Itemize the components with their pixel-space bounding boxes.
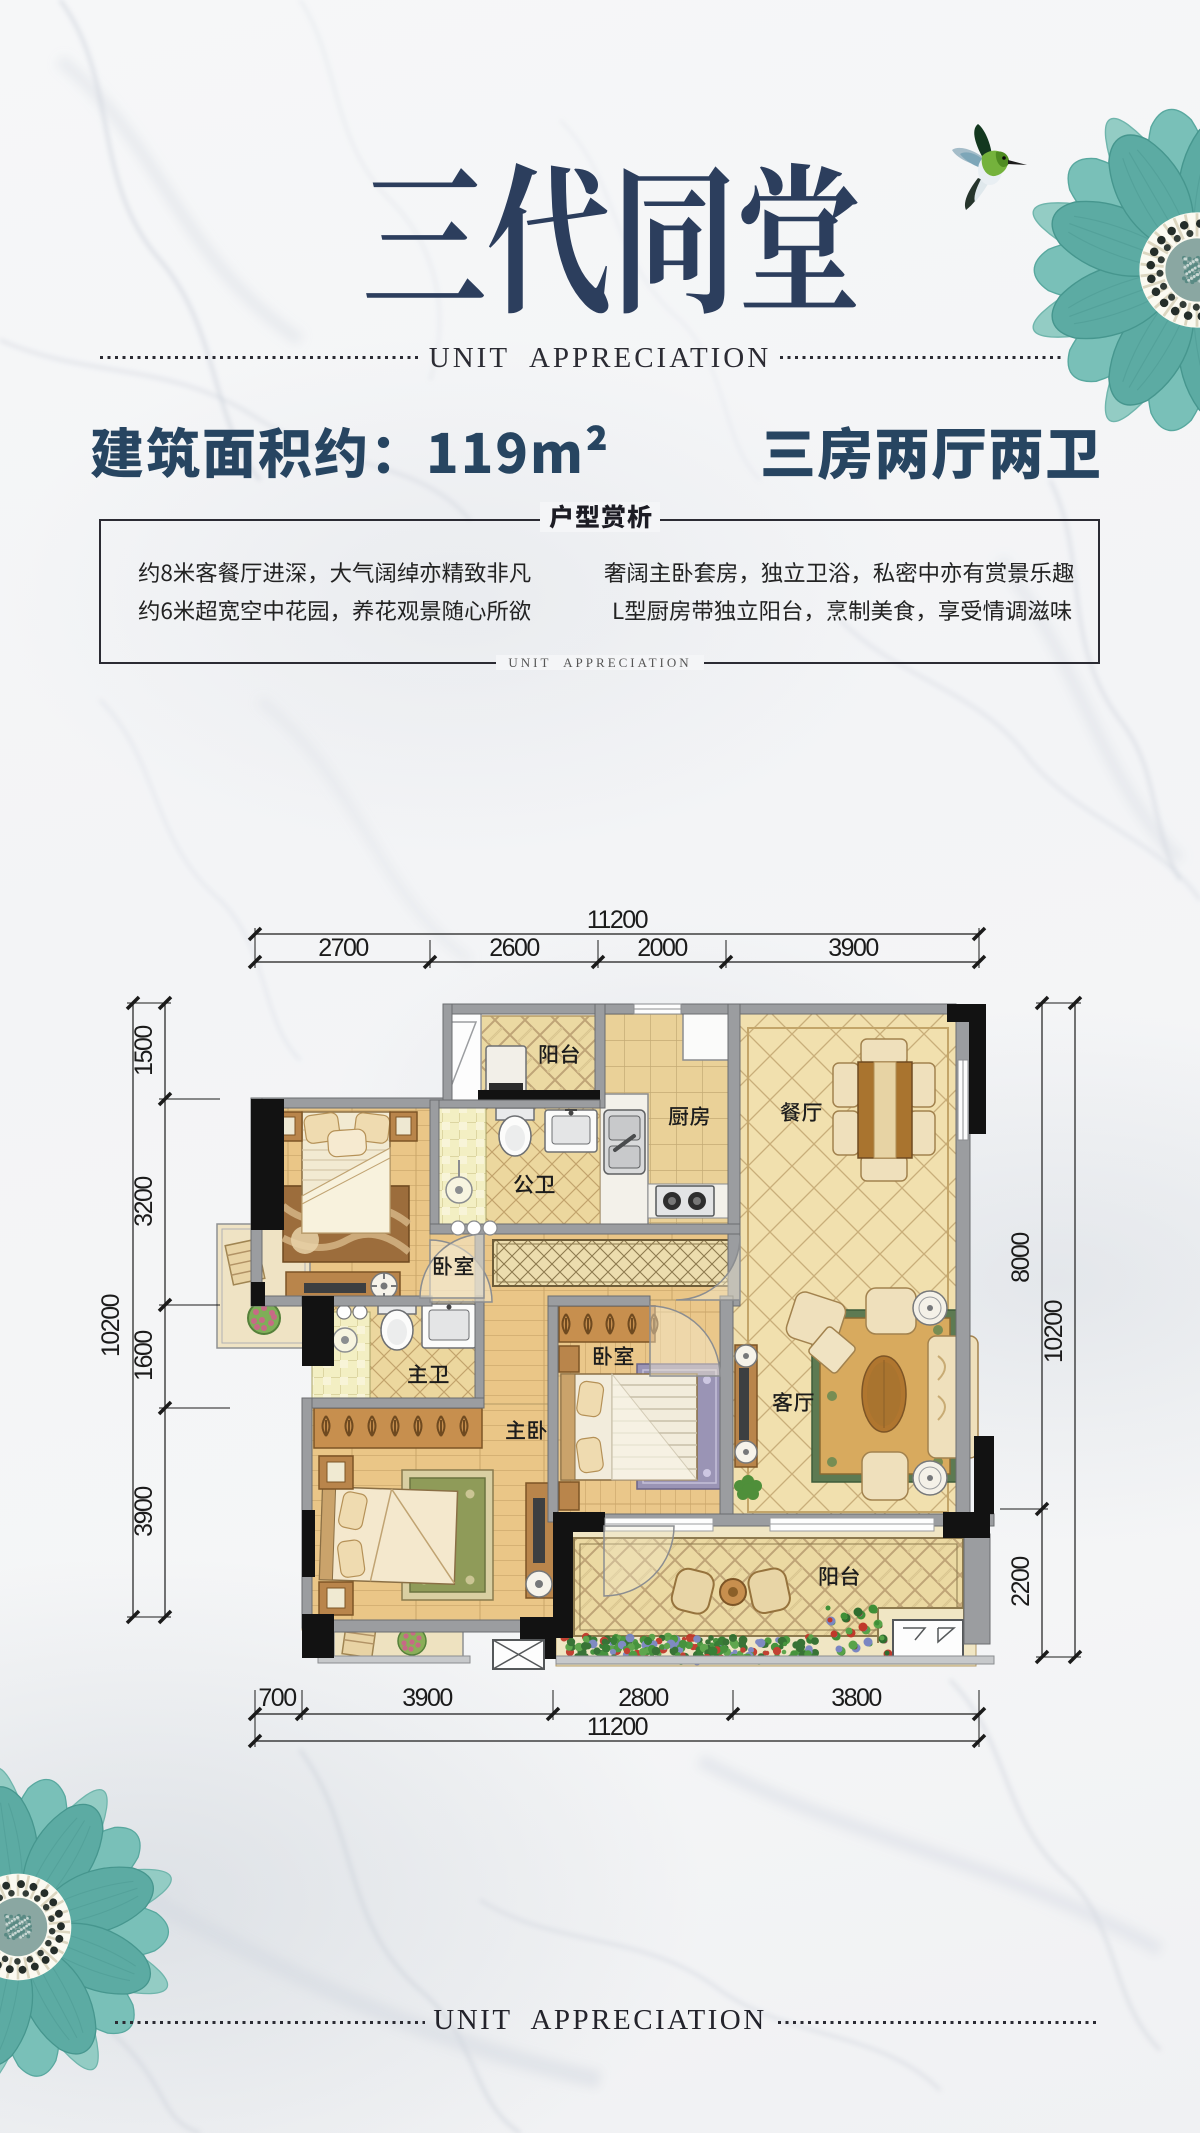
svg-text:3200: 3200 bbox=[130, 1177, 158, 1227]
svg-text:10200: 10200 bbox=[1040, 1300, 1068, 1363]
svg-text:3900: 3900 bbox=[130, 1487, 158, 1537]
svg-text:2800: 2800 bbox=[618, 1684, 668, 1712]
svg-text:3900: 3900 bbox=[402, 1684, 452, 1712]
svg-text:700: 700 bbox=[258, 1684, 296, 1712]
svg-text:3800: 3800 bbox=[831, 1684, 881, 1712]
svg-text:10200: 10200 bbox=[97, 1294, 125, 1357]
svg-text:8000: 8000 bbox=[1007, 1233, 1035, 1283]
svg-text:11200: 11200 bbox=[587, 1713, 648, 1741]
svg-text:2600: 2600 bbox=[489, 934, 539, 962]
svg-text:11200: 11200 bbox=[587, 906, 648, 934]
svg-text:2700: 2700 bbox=[318, 934, 368, 962]
svg-text:1600: 1600 bbox=[130, 1331, 158, 1381]
svg-text:3900: 3900 bbox=[828, 934, 878, 962]
svg-text:2000: 2000 bbox=[637, 934, 687, 962]
svg-text:2200: 2200 bbox=[1007, 1557, 1035, 1607]
svg-text:1500: 1500 bbox=[130, 1026, 158, 1076]
